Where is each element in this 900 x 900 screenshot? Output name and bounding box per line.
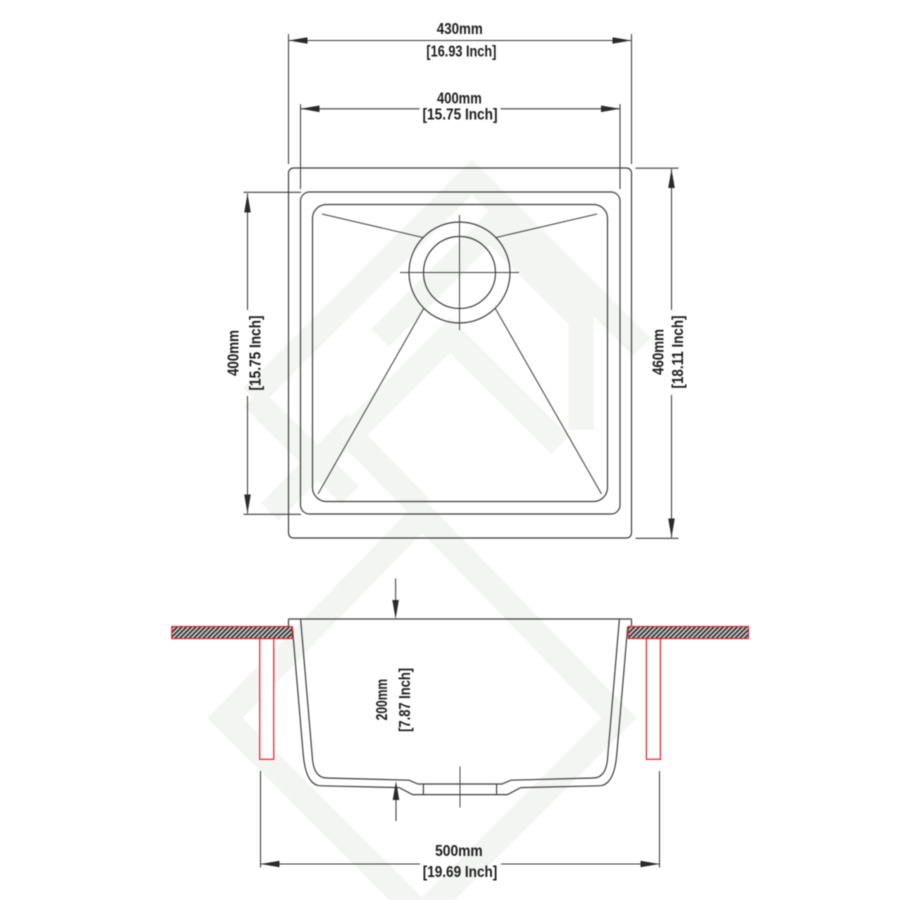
svg-text:400mm: 400mm [437,90,482,107]
svg-text:[15.75 Inch]: [15.75 Inch] [248,316,265,391]
svg-text:500mm: 500mm [435,843,483,860]
svg-text:430mm: 430mm [437,21,483,38]
svg-text:[7.87 Inch]: [7.87 Inch] [397,668,414,732]
svg-text:[16.93 Inch]: [16.93 Inch] [426,44,496,61]
svg-text:200mm: 200mm [374,679,391,721]
svg-text:[18.11 Inch]: [18.11 Inch] [670,316,687,389]
svg-text:460mm: 460mm [651,329,668,375]
svg-text:[19.69 Inch]: [19.69 Inch] [423,864,498,881]
svg-text:400mm: 400mm [226,330,243,376]
svg-text:[15.75 Inch]: [15.75 Inch] [423,107,498,124]
